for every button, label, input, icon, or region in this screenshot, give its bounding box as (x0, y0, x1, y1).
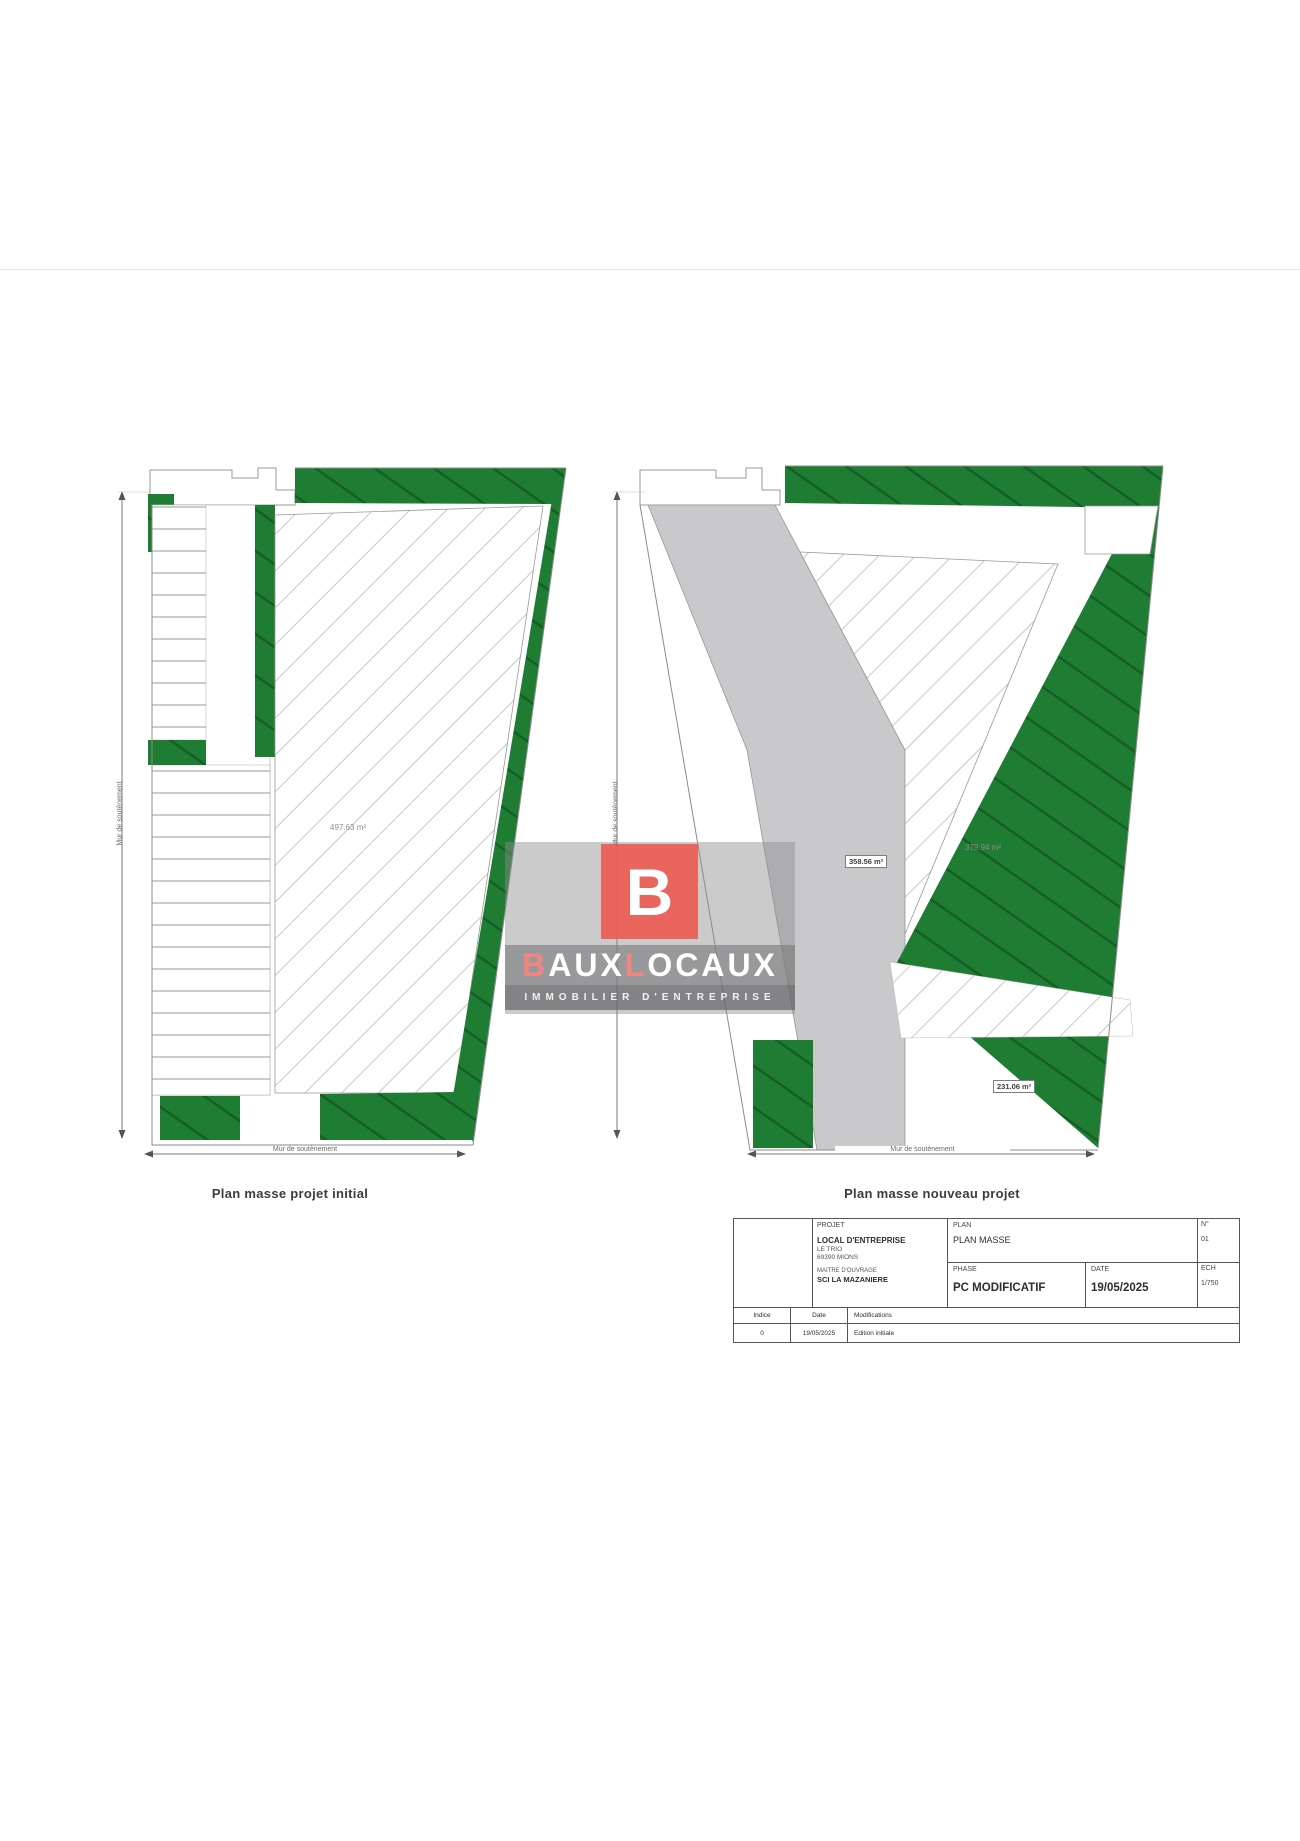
area-label-initial: 497.63 m² (330, 823, 366, 832)
caption-plan-initial: Plan masse projet initial (160, 1186, 420, 1201)
revision-col-modifications: Modifications (848, 1312, 1239, 1319)
brand-letter-l: L (625, 947, 648, 984)
brand-letter-b: B (522, 947, 548, 984)
dim-label-bottom-initial: Mur de soutènement (220, 1146, 390, 1153)
brand-aux: AUX (548, 947, 625, 984)
maitre-douvrage-header: MAITRE D'OUVRAGE (817, 1268, 943, 1274)
brand-ocaux: OCAUX (647, 947, 778, 984)
revision-col-indice: Indice (734, 1308, 791, 1323)
maitre-douvrage-name: SCI LA MAZANIERE (817, 1275, 943, 1284)
phase-value: PC MODIFICATIF (953, 1282, 1080, 1294)
date-header: DATE (1091, 1266, 1192, 1273)
bauxlocaux-logo-icon: B (601, 844, 698, 939)
plan-nouveau-geometry (613, 466, 1163, 1154)
revision-date-value: 19/05/2025 (791, 1324, 848, 1342)
watermark-brand-name: BAUXLOCAUX (505, 945, 795, 985)
titleblock-date-cell: DATE 19/05/2025 (1086, 1263, 1197, 1307)
titleblock-projet-cell: PROJET LOCAL D'ENTREPRISE LE TRIO 69390 … (813, 1219, 948, 1307)
revision-row-0: 0 19/05/2025 Edition initiale (733, 1324, 1240, 1343)
watermark-tagline: IMMOBILIER D'ENTREPRISE (505, 985, 795, 1010)
number-value: 01 (1201, 1236, 1236, 1243)
scale-header: ECH (1201, 1265, 1236, 1272)
titleblock-plan-cell: PLAN PLAN MASSE (948, 1219, 1197, 1263)
titleblock-scale-cell: ECH 1/750 (1198, 1263, 1239, 1307)
projet-header: PROJET (817, 1222, 943, 1229)
plan-header: PLAN (953, 1222, 1192, 1229)
plan-value: PLAN MASSE (953, 1235, 1192, 1245)
titleblock-phase-cell: PHASE PC MODIFICATIF (948, 1263, 1086, 1307)
dim-label-left-initial: Mur de soutènement (117, 754, 124, 874)
title-block: PROJET LOCAL D'ENTREPRISE LE TRIO 69390 … (733, 1218, 1240, 1343)
phase-header: PHASE (953, 1266, 1080, 1273)
titleblock-logo-cell (734, 1219, 813, 1307)
projet-name: LOCAL D'ENTREPRISE (817, 1236, 943, 1245)
projet-line3: 69390 MIONS (817, 1254, 943, 1261)
revision-modification-value: Edition initiale (848, 1330, 1239, 1337)
projet-line2: LE TRIO (817, 1246, 943, 1253)
plan-initial-geometry (118, 468, 566, 1154)
dim-label-bottom-nouveau: Mur de soutènement (835, 1146, 1010, 1153)
revision-col-date: Date (791, 1308, 848, 1323)
revision-indice-value: 0 (734, 1324, 791, 1342)
area-label-green: 231.06 m² (993, 1080, 1035, 1093)
date-value: 19/05/2025 (1091, 1282, 1192, 1294)
scale-value: 1/750 (1201, 1280, 1236, 1287)
logo-letter: B (626, 859, 674, 925)
titleblock-number-cell: N° 01 (1198, 1219, 1239, 1263)
area-label-hatch-nouveau: 379.94 m² (965, 843, 1001, 852)
revision-header-row: Indice Date Modifications (733, 1308, 1240, 1324)
number-header: N° (1201, 1221, 1236, 1228)
caption-plan-nouveau: Plan masse nouveau projet (792, 1186, 1072, 1201)
area-label-gray-strip: 358.56 m² (845, 855, 887, 868)
